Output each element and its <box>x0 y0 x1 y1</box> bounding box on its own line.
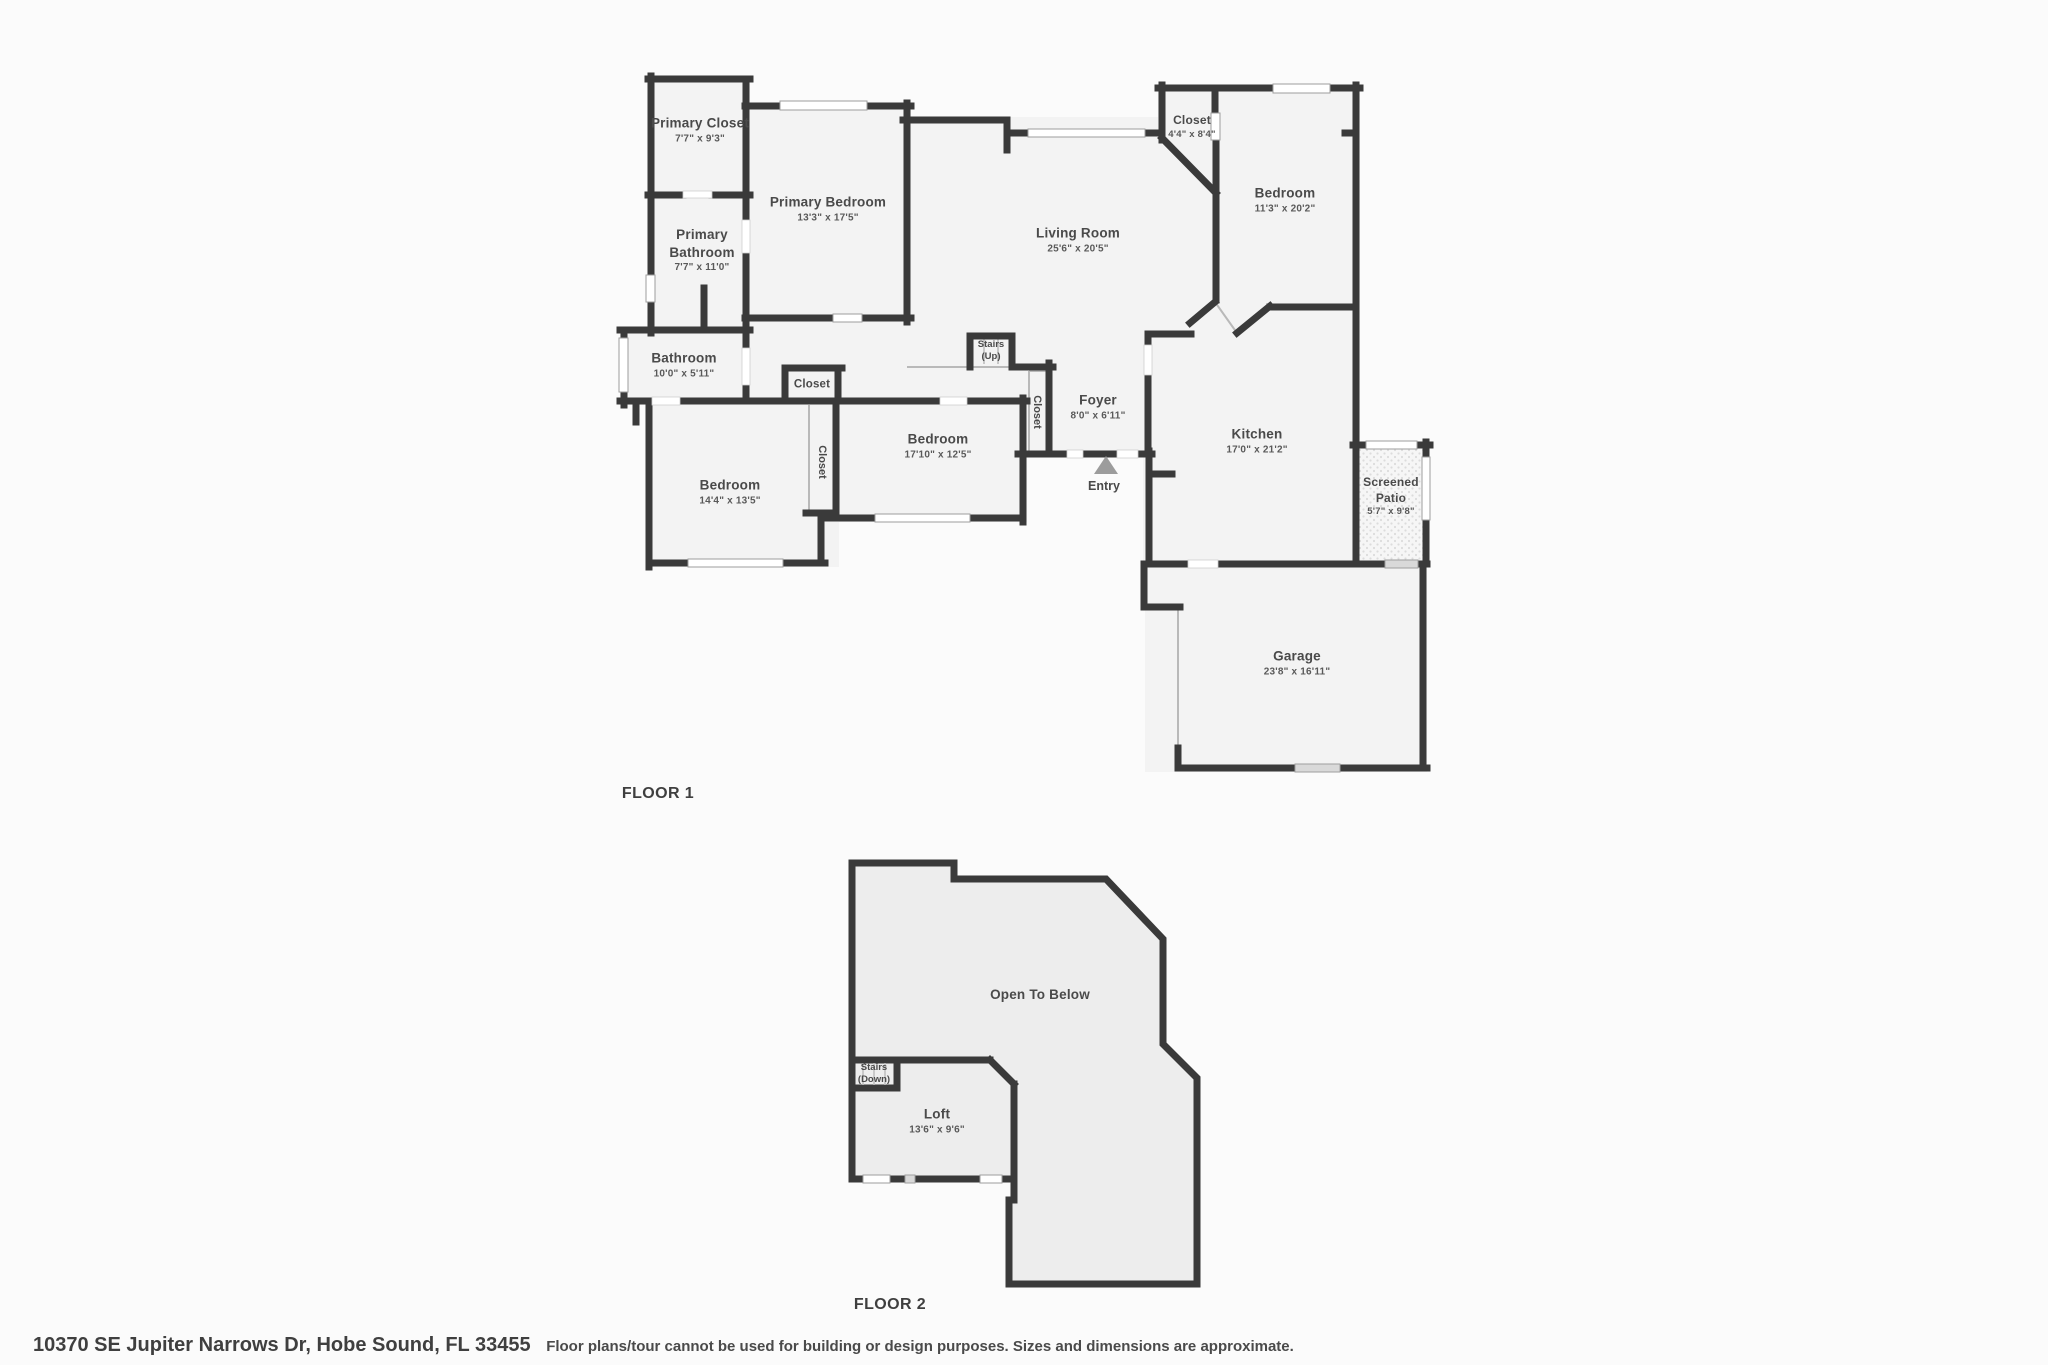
room-label-primary-bathroom: Primary Bathroom 7'7" x 11'0" <box>663 226 741 274</box>
entry-label: Entry <box>1088 478 1120 494</box>
room-label-garage: Garage 23'8" x 16'11" <box>1264 648 1331 679</box>
entry-arrow-icon <box>1094 456 1118 474</box>
room-label-bedroom-right: Bedroom 11'3" x 20'2" <box>1255 185 1316 216</box>
room-label-closet-hall: Closet <box>794 378 830 393</box>
room-label-open-to-below: Open To Below <box>990 986 1090 1004</box>
room-label-bedroom-middle: Bedroom 17'10" x 12'5" <box>904 431 971 462</box>
floorplan-canvas: Primary Closet 7'7" x 9'3" Primary Bathr… <box>0 0 2048 1365</box>
disclaimer-text: Floor plans/tour cannot be used for buil… <box>546 1338 1294 1355</box>
room-label-bathroom: Bathroom 10'0" x 5'11" <box>651 350 716 381</box>
room-label-kitchen: Kitchen 17'0" x 21'2" <box>1226 426 1287 457</box>
room-label-primary-closet: Primary Closet 7'7" x 9'3" <box>651 115 749 146</box>
room-label-primary-bedroom: Primary Bedroom 13'3" x 17'5" <box>770 194 886 225</box>
room-label-foyer: Foyer 8'0" x 6'11" <box>1070 392 1125 423</box>
room-label-closet-left: Closet <box>815 445 829 479</box>
stairs-up-label: Stairs (Up) <box>978 339 1004 363</box>
room-label-living-room: Living Room 25'6" x 20'5" <box>1036 225 1120 256</box>
room-label-bedroom-left: Bedroom 14'4" x 13'5" <box>699 477 760 508</box>
room-label-closet-top: Closet 4'4" x 8'4" <box>1168 113 1215 141</box>
address-text: 10370 SE Jupiter Narrows Dr, Hobe Sound,… <box>33 1334 531 1357</box>
room-label-screened-patio: Screened Patio 5'7" x 9'8" <box>1359 475 1423 519</box>
floor1-title: FLOOR 1 <box>622 785 694 803</box>
stairs-down-label: Stairs (Down) <box>858 1062 890 1086</box>
floor2-title: FLOOR 2 <box>854 1296 926 1314</box>
room-label-closet-foyer: Closet <box>1030 395 1044 429</box>
floor2-footprint <box>852 863 1197 1284</box>
room-label-loft: Loft 13'6" x 9'6" <box>909 1106 965 1137</box>
floorplan-drawing <box>0 0 2048 1365</box>
